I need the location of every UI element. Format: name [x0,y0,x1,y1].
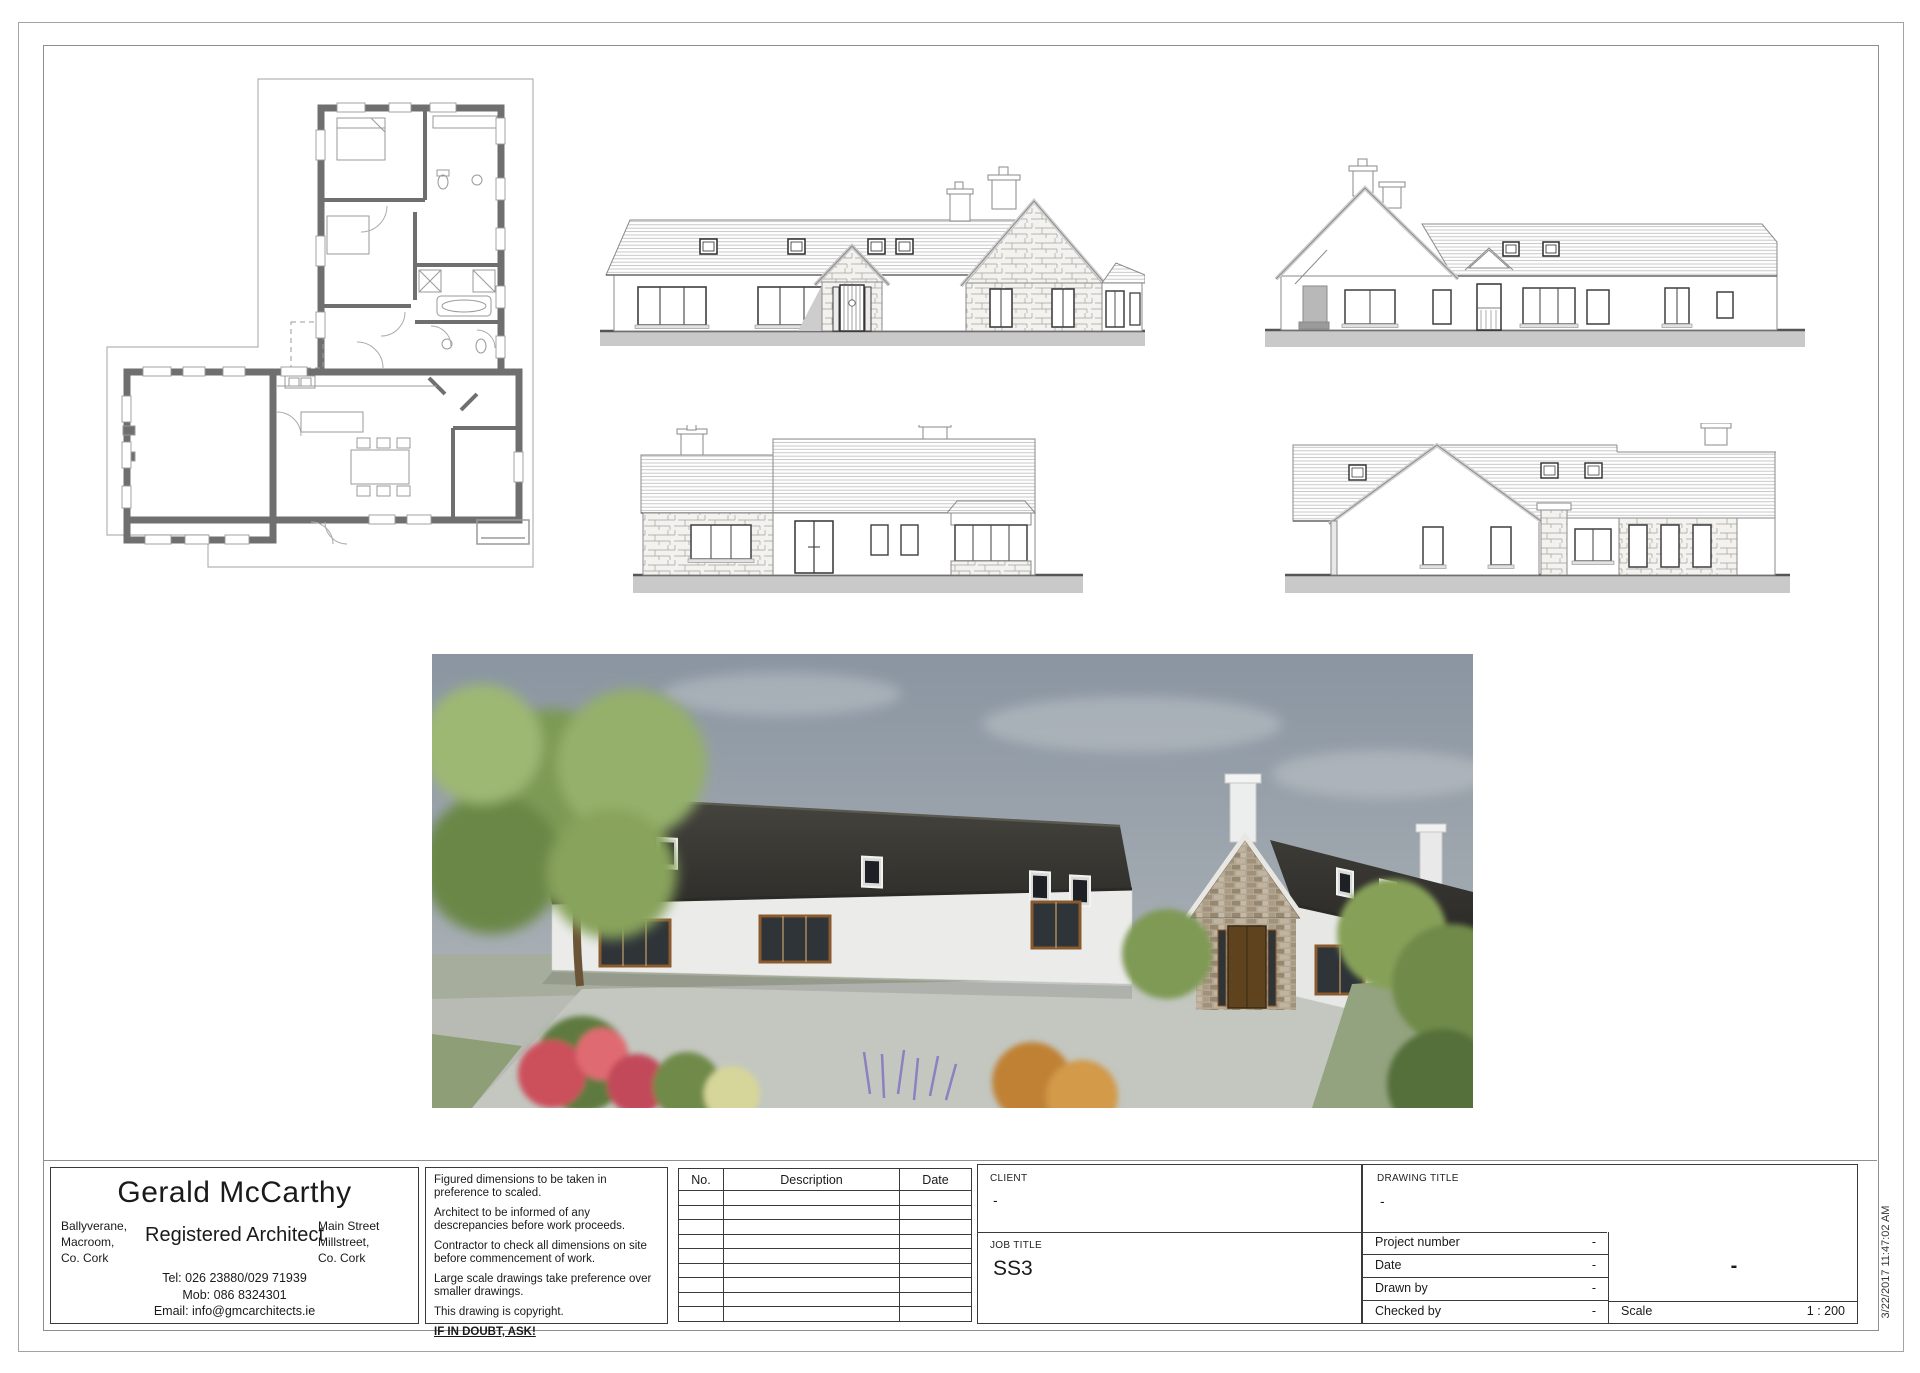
note-item: Architect to be informed of any descrepa… [434,1207,659,1233]
drawing-sheet: Gerald McCarthy Ballyverane, Macroom, Co… [0,0,1920,1373]
side-elevation-left-drawing [633,425,1083,605]
revision-col-date: Date [900,1169,972,1191]
title-block: Gerald McCarthy Ballyverane, Macroom, Co… [43,1160,1877,1330]
revision-row [679,1292,972,1307]
ground-strip [1285,576,1790,593]
plan-porch [291,322,529,544]
architect-email: Email: info@gmcarchitects.ie [51,1303,418,1320]
scale-value: 1 : 200 [1807,1304,1845,1318]
left-section [641,425,773,575]
note-warning: IF IN DOUBT, ASK! [434,1326,659,1339]
revision-row [679,1249,972,1264]
revision-row [679,1278,972,1293]
notes-panel: Figured dimensions to be taken in prefer… [425,1167,668,1324]
field-date: Date - [1363,1255,1608,1278]
revision-row [679,1191,972,1206]
3d-render-image [432,654,1473,1108]
drawing-title-label: DRAWING TITLE [1377,1173,1459,1184]
architect-contact: Tel: 026 23880/029 71939 Mob: 086 832430… [51,1270,418,1320]
scale-row: Scale 1 : 200 [1609,1301,1859,1324]
sheet-number: - [1609,1232,1859,1301]
architect-tel: Tel: 026 23880/029 71939 [51,1270,418,1287]
client-panel: CLIENT - JOB TITLE SS3 [977,1164,1362,1324]
revision-table: No. Description Date [678,1168,972,1322]
revision-row [679,1234,972,1249]
ground-strip [1265,331,1805,347]
front-elevation-drawing [600,163,1145,358]
client-value: - [993,1192,998,1208]
note-item: This drawing is copyright. [434,1306,659,1319]
ground-strip [633,576,1083,593]
right-wing [1102,263,1145,331]
architect-panel: Gerald McCarthy Ballyverane, Macroom, Co… [50,1167,419,1324]
chimney-2 [1420,830,1442,884]
revision-col-description: Description [724,1169,900,1191]
drawing-title-value: - [1380,1193,1385,1209]
side-elevation-right-drawing [1285,423,1790,603]
revision-row [679,1263,972,1278]
revision-row [679,1220,972,1235]
chimney [1230,780,1256,842]
field-drawn-by: Drawn by - [1363,1278,1608,1301]
architect-mob: Mob: 086 8324301 [51,1287,418,1304]
rear-elevation-drawing [1265,158,1805,358]
revision-col-no: No. [679,1169,724,1191]
tree-foliage [432,684,707,939]
job-title-value: SS3 [993,1257,1033,1281]
revision-header-row: No. Description Date [679,1169,972,1191]
revision-row [679,1307,972,1322]
note-item: Large scale drawings take preference ove… [434,1273,659,1299]
note-item: Figured dimensions to be taken in prefer… [434,1174,659,1200]
architect-address-right: Main Street Millstreet, Co. Cork [318,1218,410,1266]
right-section [773,425,1035,575]
floor-plan-drawing [85,60,565,630]
scale-label: Scale [1621,1304,1652,1318]
client-label: CLIENT [990,1173,1027,1184]
revision-row [679,1205,972,1220]
note-item: Contractor to check all dimensions on si… [434,1240,659,1266]
job-title-label: JOB TITLE [990,1240,1042,1251]
ground-strip [600,332,1145,346]
print-timestamp: 3/22/2017 11:47:02 AM [1880,1177,1894,1347]
architect-name: Gerald McCarthy [51,1176,418,1210]
field-checked-by: Checked by - [1363,1301,1608,1324]
revision-table-body [679,1191,972,1322]
drawing-info-panel: DRAWING TITLE - Project number - Date - … [1362,1164,1858,1324]
field-project-number: Project number - [1363,1232,1608,1255]
bay-window [947,501,1035,575]
plan-fixtures [123,116,497,496]
